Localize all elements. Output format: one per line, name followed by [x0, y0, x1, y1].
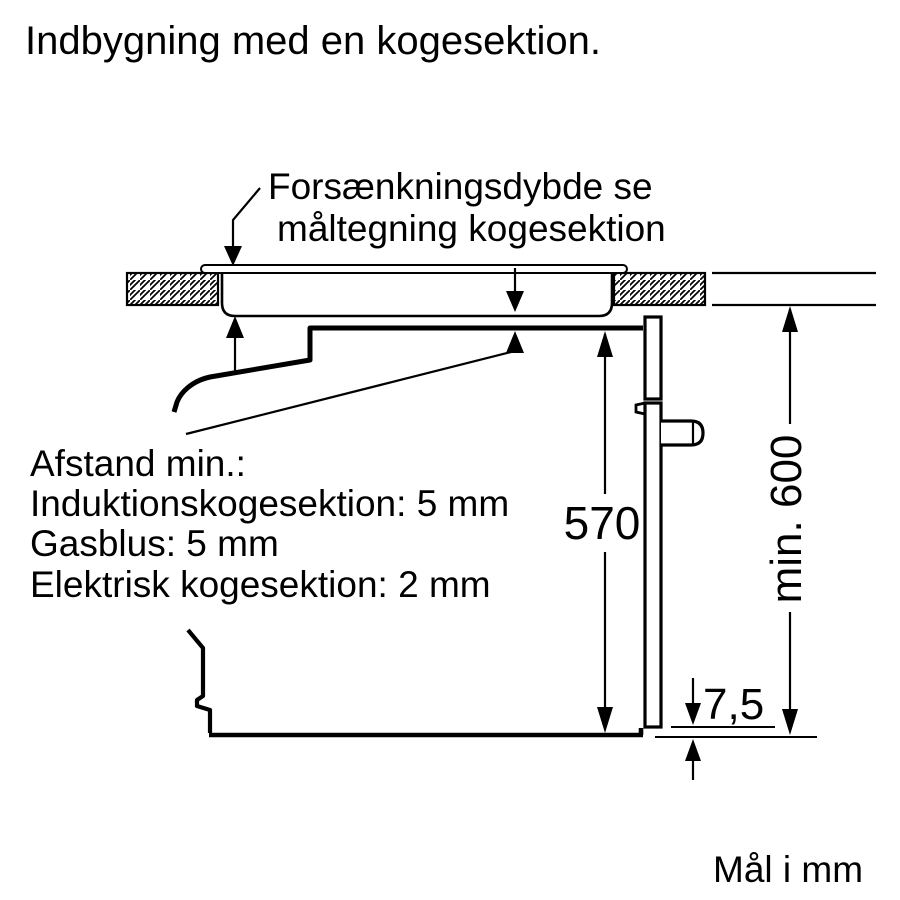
- callout-recess-line2: måltegning kogesektion: [277, 208, 666, 249]
- clearance-note-line4: Elektrisk kogesektion: 2 mm: [30, 564, 491, 605]
- clearance-note-line2: Induktionskogesektion: 5 mm: [30, 483, 509, 524]
- oven-door: [645, 403, 661, 727]
- oven-door-frame: [645, 317, 661, 399]
- hob-flange: [201, 265, 627, 273]
- units-note: Mål i mm: [713, 849, 863, 890]
- dim-7-5-label: 7,5: [703, 680, 764, 729]
- installation-diagram-page: Indbygning med en kogesektion. Forsænkni…: [0, 0, 900, 900]
- worktop-left-section: [127, 273, 218, 305]
- dim-min600-label: min. 600: [762, 435, 811, 604]
- hob-body: [222, 272, 612, 316]
- page-title: Indbygning med en kogesektion.: [25, 19, 601, 63]
- clearance-note-line1: Afstand min.:: [30, 443, 246, 484]
- clearance-note-line3: Gasblus: 5 mm: [30, 523, 279, 564]
- callout-recess-line1: Forsænkningsdybde se: [268, 166, 653, 207]
- worktop-right-section: [614, 273, 705, 305]
- installation-diagram: Indbygning med en kogesektion. Forsænkni…: [0, 0, 900, 900]
- dim-570-label: 570: [564, 497, 641, 549]
- door-handle: [661, 421, 703, 445]
